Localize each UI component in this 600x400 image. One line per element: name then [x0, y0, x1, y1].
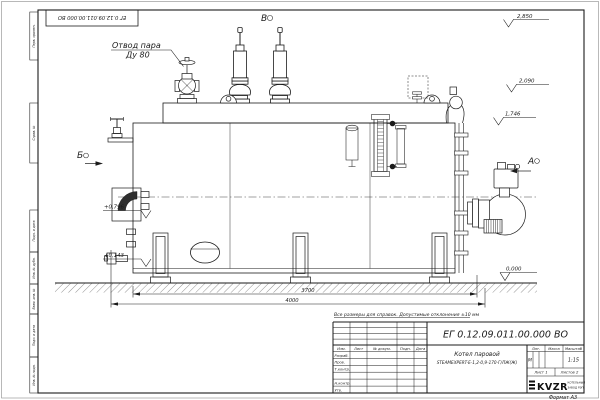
- row-nkontr: Н.контр.: [335, 382, 351, 386]
- row-utv: Утв.: [335, 388, 343, 392]
- margin-label: Перв. примен.: [32, 24, 36, 47]
- margin-label: Инв. № дубл.: [32, 257, 36, 278]
- view-letter: В: [261, 14, 267, 24]
- col-header-izm: Изм.: [337, 347, 345, 351]
- row-razrab: Разраб.: [335, 354, 349, 358]
- massa-header: Масса: [548, 347, 559, 351]
- logo-bars-icon: [529, 388, 535, 390]
- sheet-number: Лист 1: [533, 370, 547, 375]
- sheet-count: Листов 2: [560, 370, 579, 375]
- elevation-value: +0,796: [104, 204, 125, 210]
- margin-label: Справ. №: [32, 125, 36, 140]
- drawing-sheet: Перв. примен. Справ. № Подп. и дата Инв.…: [0, 0, 600, 400]
- view-letter: Б: [77, 151, 83, 161]
- lit-value: М: [528, 358, 532, 364]
- margin-label: Подп. и дата: [32, 325, 36, 346]
- margin-label: Подп. и дата: [32, 220, 36, 241]
- col-header-data: Дата: [415, 347, 425, 351]
- product-name: Котел паровой: [454, 352, 500, 358]
- row-tkontr: Т.контр.: [335, 368, 351, 372]
- margin-label: Инв. № подл.: [32, 364, 36, 385]
- elevation-value: +0,143: [104, 253, 125, 259]
- product-type: STEAMEXPERT-Е-1,2-0,9-170-Г/ЛЖ(Ж): [437, 360, 518, 365]
- callout-text: Отвод пара: [112, 41, 161, 50]
- doc-number: ЕГ 0.12.09.011.00.000 ВО: [443, 330, 569, 341]
- logo-subtext: ЗАВОД РЭП: [568, 386, 584, 390]
- scale-value: 1:15: [568, 358, 579, 364]
- col-header-podp: Подп.: [400, 347, 411, 351]
- elevation-value: 0,000: [506, 266, 522, 272]
- col-header-doc: № докум.: [372, 347, 391, 351]
- lit-header: Лит.: [531, 347, 540, 351]
- margin-label: Взам. инв. №: [32, 288, 36, 309]
- view-letter: А: [527, 157, 534, 167]
- col-header-list: Лист: [353, 347, 364, 351]
- format-label: Формат А3: [549, 395, 577, 400]
- logo-bars-icon: [529, 384, 535, 386]
- stamp-doc-number: ЕГ 0.12.09.011.00.000 ВО: [58, 14, 126, 20]
- logo-text: KVZR: [537, 382, 568, 393]
- elevation-value: 2,850: [517, 14, 533, 20]
- dimension-value: 4000: [285, 298, 299, 304]
- masshtab-header: Масштаб: [565, 347, 583, 351]
- drawing-note: Все размеры для справок. Допустимые откл…: [334, 312, 480, 318]
- callout-text: Ду 80: [125, 51, 150, 60]
- logo-bars-icon: [529, 381, 535, 383]
- elevation-value: 2,090: [519, 78, 535, 84]
- logo-subtext: КОТЕЛЬНЫЙ: [568, 380, 586, 385]
- elevation-value: 1,746: [505, 111, 521, 117]
- row-prov: Пров.: [335, 361, 345, 365]
- dimension-value: 3700: [301, 288, 315, 294]
- ground-hatch: [55, 284, 537, 293]
- boiler-general-view-drawing: Перв. примен. Справ. № Подп. и дата Инв.…: [0, 0, 600, 400]
- note-text: Все размеры для справок. Допустимые откл…: [334, 312, 480, 318]
